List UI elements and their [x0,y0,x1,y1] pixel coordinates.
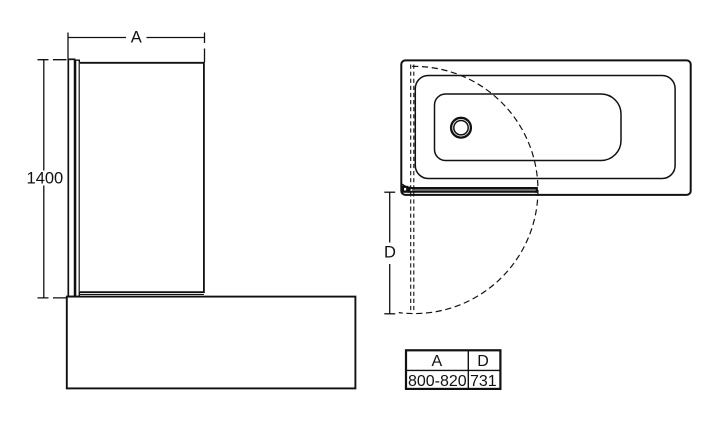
svg-text:D: D [384,244,396,262]
svg-text:A: A [431,353,442,370]
svg-text:A: A [131,29,142,47]
svg-text:D: D [477,353,489,370]
svg-text:731: 731 [470,373,497,390]
svg-text:1400: 1400 [27,170,64,188]
svg-text:800-820: 800-820 [408,373,467,390]
